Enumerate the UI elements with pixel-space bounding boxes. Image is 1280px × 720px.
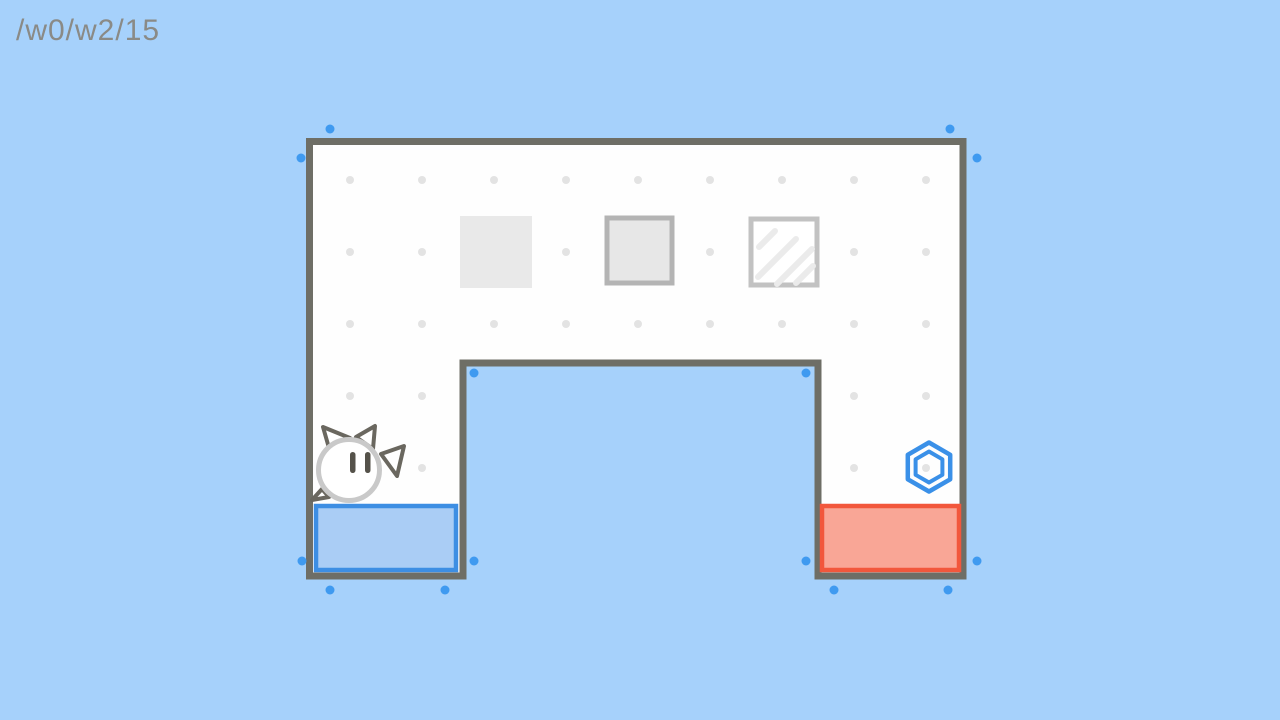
grid-dot [418, 320, 426, 328]
block-bordered[interactable] [607, 218, 672, 283]
goal-zone-red[interactable] [822, 506, 959, 570]
grid-dot [562, 176, 570, 184]
grid-dot [850, 392, 858, 400]
vertex-handle-dot[interactable] [326, 586, 335, 595]
vertex-handle-dot[interactable] [944, 586, 953, 595]
vertex-handle-dot[interactable] [802, 557, 811, 566]
grid-dot [346, 320, 354, 328]
grid-dot [778, 176, 786, 184]
block-solid[interactable] [460, 216, 532, 288]
vertex-handle-dot[interactable] [441, 586, 450, 595]
vertex-handle-dot[interactable] [470, 557, 479, 566]
grid-dot [490, 176, 498, 184]
game-canvas [0, 0, 1280, 720]
grid-dot [346, 392, 354, 400]
grid-dot [850, 320, 858, 328]
grid-dot [490, 320, 498, 328]
grid-dot [418, 176, 426, 184]
grid-dot [922, 176, 930, 184]
grid-dot [922, 320, 930, 328]
grid-dot [418, 392, 426, 400]
grid-dot [922, 392, 930, 400]
grid-dot [346, 248, 354, 256]
block-bordered-body[interactable] [607, 218, 672, 283]
grid-dot [850, 464, 858, 472]
grid-dot [922, 248, 930, 256]
grid-dot [778, 320, 786, 328]
vertex-handle-dot[interactable] [802, 369, 811, 378]
grid-dot [850, 176, 858, 184]
grid-dot [418, 248, 426, 256]
vertex-handle-dot[interactable] [470, 369, 479, 378]
grid-dot [922, 464, 930, 472]
grid-dot [634, 320, 642, 328]
vertex-handle-dot[interactable] [973, 154, 982, 163]
vertex-handle-dot[interactable] [326, 125, 335, 134]
block-solid-body[interactable] [460, 216, 532, 288]
goal-zone-blue[interactable] [316, 506, 456, 570]
grid-dot [562, 320, 570, 328]
grid-dot [706, 176, 714, 184]
cat-eye [365, 452, 371, 473]
vertex-handle-dot[interactable] [298, 557, 307, 566]
vertex-handle-dot[interactable] [973, 557, 982, 566]
cat-eye [350, 452, 356, 473]
vertex-handle-dot[interactable] [297, 154, 306, 163]
block-glass[interactable] [751, 219, 817, 285]
grid-dot [418, 464, 426, 472]
grid-dot [346, 176, 354, 184]
grid-dot [850, 248, 858, 256]
grid-dot [706, 248, 714, 256]
vertex-handle-dot[interactable] [830, 586, 839, 595]
grid-dot [562, 248, 570, 256]
grid-dot [634, 176, 642, 184]
vertex-handle-dot[interactable] [946, 125, 955, 134]
grid-dot [706, 320, 714, 328]
